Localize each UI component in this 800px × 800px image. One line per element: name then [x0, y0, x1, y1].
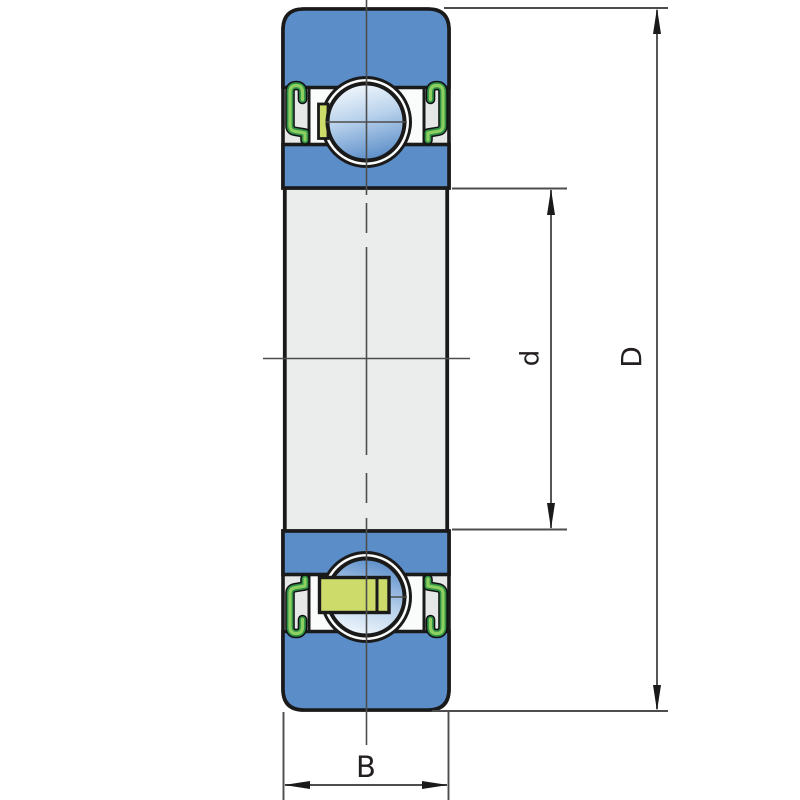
arrowhead-left: [284, 781, 310, 789]
cage-pocket-rect: [320, 578, 390, 613]
label-outer-diameter: D: [615, 346, 648, 368]
label-width: B: [356, 750, 376, 784]
arrowhead-down: [653, 685, 661, 711]
cage-bottom: [320, 578, 390, 613]
bearing-cross-section-drawing: d D B: [0, 0, 800, 800]
label-bore-diameter: d: [515, 350, 545, 367]
arrowhead-down: [547, 503, 555, 529]
dimension-D: D: [432, 8, 668, 711]
arrowhead-up: [547, 189, 555, 215]
drawing-svg: d D B: [0, 0, 800, 800]
arrowhead-right: [422, 781, 448, 789]
arrowhead-up: [653, 8, 661, 34]
